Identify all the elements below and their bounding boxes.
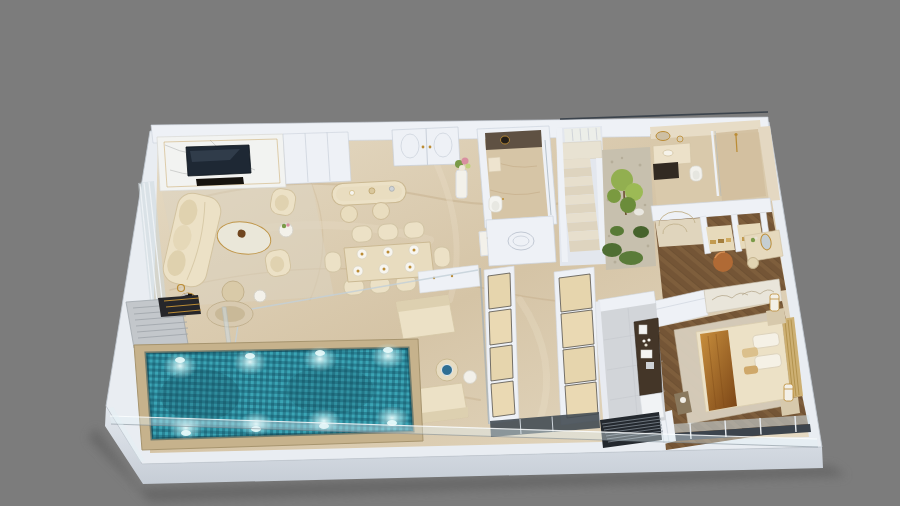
drum-side-table (254, 290, 266, 302)
staircase (556, 126, 606, 266)
dining-chair (377, 223, 398, 240)
coffee-machine (639, 325, 647, 334)
cup (642, 339, 645, 342)
pool-light (163, 353, 197, 379)
floorplan-render (0, 0, 900, 506)
door-knob (429, 146, 432, 149)
magnifier-mirror (677, 136, 683, 142)
cup (647, 338, 650, 341)
medallion-wall (486, 216, 556, 266)
column-lamp (770, 294, 779, 311)
upper-flight (564, 127, 601, 142)
dining-chair (433, 246, 450, 267)
pool-light (233, 349, 267, 375)
depth-shade (286, 366, 374, 414)
tall-cabinet (283, 132, 351, 184)
wall-basin (488, 157, 501, 172)
vase-bloom (754, 236, 757, 239)
powder-room (477, 126, 557, 266)
decor-tray (349, 190, 354, 195)
dark-marble-wall (485, 130, 542, 150)
decor-dish (389, 186, 394, 191)
stair-landing (560, 141, 602, 160)
wardrobe-panel (559, 274, 592, 312)
dining-chair (324, 251, 341, 272)
entry-double-doors (392, 127, 460, 166)
lounger (396, 295, 455, 339)
decor-bowl (369, 188, 375, 194)
walk-in-shower (712, 129, 766, 201)
wardrobe-panel (561, 310, 594, 348)
dining-chair (351, 225, 372, 242)
column-lamp (784, 384, 793, 401)
round-gold-mirror (656, 132, 670, 141)
kitchenette (594, 291, 666, 448)
round-pouf (222, 281, 244, 303)
round-lounge-table (436, 359, 458, 381)
gold-flush (502, 198, 504, 200)
white-rock (634, 209, 644, 216)
towel-stack (641, 350, 652, 358)
white-side-table (464, 371, 477, 384)
wardrobe-panel (488, 273, 511, 309)
wardrobe-panel (563, 346, 596, 384)
master-bathroom (650, 120, 780, 208)
bar-stool (373, 203, 390, 220)
round-daybed (207, 301, 253, 327)
wardrobe-panel (489, 309, 512, 345)
dressing-stool (748, 258, 759, 269)
wardrobe-column (484, 266, 519, 424)
vase (680, 397, 686, 403)
pool-light (303, 346, 337, 372)
wardrobe-panel (490, 345, 513, 381)
bar-stool (341, 206, 358, 223)
round-mirror (501, 136, 510, 144)
swimming-pool (134, 339, 423, 450)
courtyard-garden (602, 147, 656, 270)
wardrobe-column (554, 267, 600, 425)
dining-chair (403, 221, 424, 238)
basin (663, 150, 673, 156)
small-appliance (646, 362, 654, 369)
toilet (690, 166, 703, 182)
blue-dish (442, 365, 453, 376)
door-knob (422, 146, 425, 149)
flower-greens (282, 224, 286, 228)
flower-bloom (286, 223, 290, 227)
fireplace-wall (157, 134, 286, 191)
wardrobe-panel (491, 381, 515, 417)
dark-under-cabinet (653, 162, 679, 180)
flower-pedestal (456, 170, 467, 198)
shower-head (734, 133, 737, 136)
cup (644, 343, 647, 346)
pool-light (371, 343, 405, 369)
shower-floor (716, 129, 766, 201)
